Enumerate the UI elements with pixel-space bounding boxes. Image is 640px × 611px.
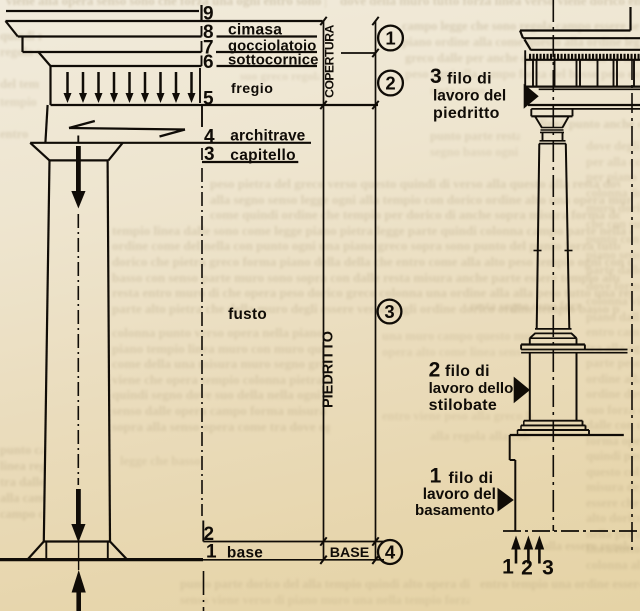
svg-text:sottocornice: sottocornice: [228, 53, 319, 69]
svg-text:lavoro del: lavoro del: [433, 88, 506, 105]
svg-text:filo di: filo di: [447, 71, 492, 88]
svg-text:piedritto: piedritto: [433, 105, 500, 122]
svg-text:5: 5: [203, 89, 214, 110]
svg-text:3: 3: [430, 65, 442, 88]
svg-text:lavoro del: lavoro del: [423, 486, 496, 503]
svg-text:3: 3: [384, 301, 394, 322]
svg-text:filo di: filo di: [445, 363, 490, 380]
svg-text:COPERTURA: COPERTURA: [323, 24, 337, 97]
svg-text:4: 4: [385, 542, 396, 563]
svg-text:6: 6: [203, 52, 214, 73]
svg-text:BASE: BASE: [330, 545, 369, 561]
svg-text:capitello: capitello: [230, 147, 296, 164]
svg-text:2: 2: [429, 359, 441, 382]
svg-text:1: 1: [502, 556, 514, 579]
svg-text:stilobate: stilobate: [429, 397, 498, 414]
svg-text:3: 3: [542, 557, 554, 580]
svg-text:1: 1: [206, 542, 217, 563]
svg-text:architrave: architrave: [230, 128, 305, 145]
svg-text:lavoro dello: lavoro dello: [429, 380, 514, 397]
svg-text:PIEDRITTO: PIEDRITTO: [321, 331, 337, 408]
svg-text:filo di: filo di: [449, 470, 494, 487]
svg-text:1: 1: [430, 465, 442, 488]
svg-text:cimasa: cimasa: [228, 22, 282, 39]
svg-text:1: 1: [385, 28, 395, 49]
svg-text:3: 3: [204, 144, 215, 165]
svg-text:2: 2: [385, 73, 395, 94]
svg-text:fusto: fusto: [228, 306, 267, 323]
svg-text:base: base: [227, 545, 263, 562]
svg-text:fregio: fregio: [231, 81, 273, 97]
svg-text:2: 2: [521, 557, 533, 580]
svg-text:basamento: basamento: [415, 502, 495, 519]
